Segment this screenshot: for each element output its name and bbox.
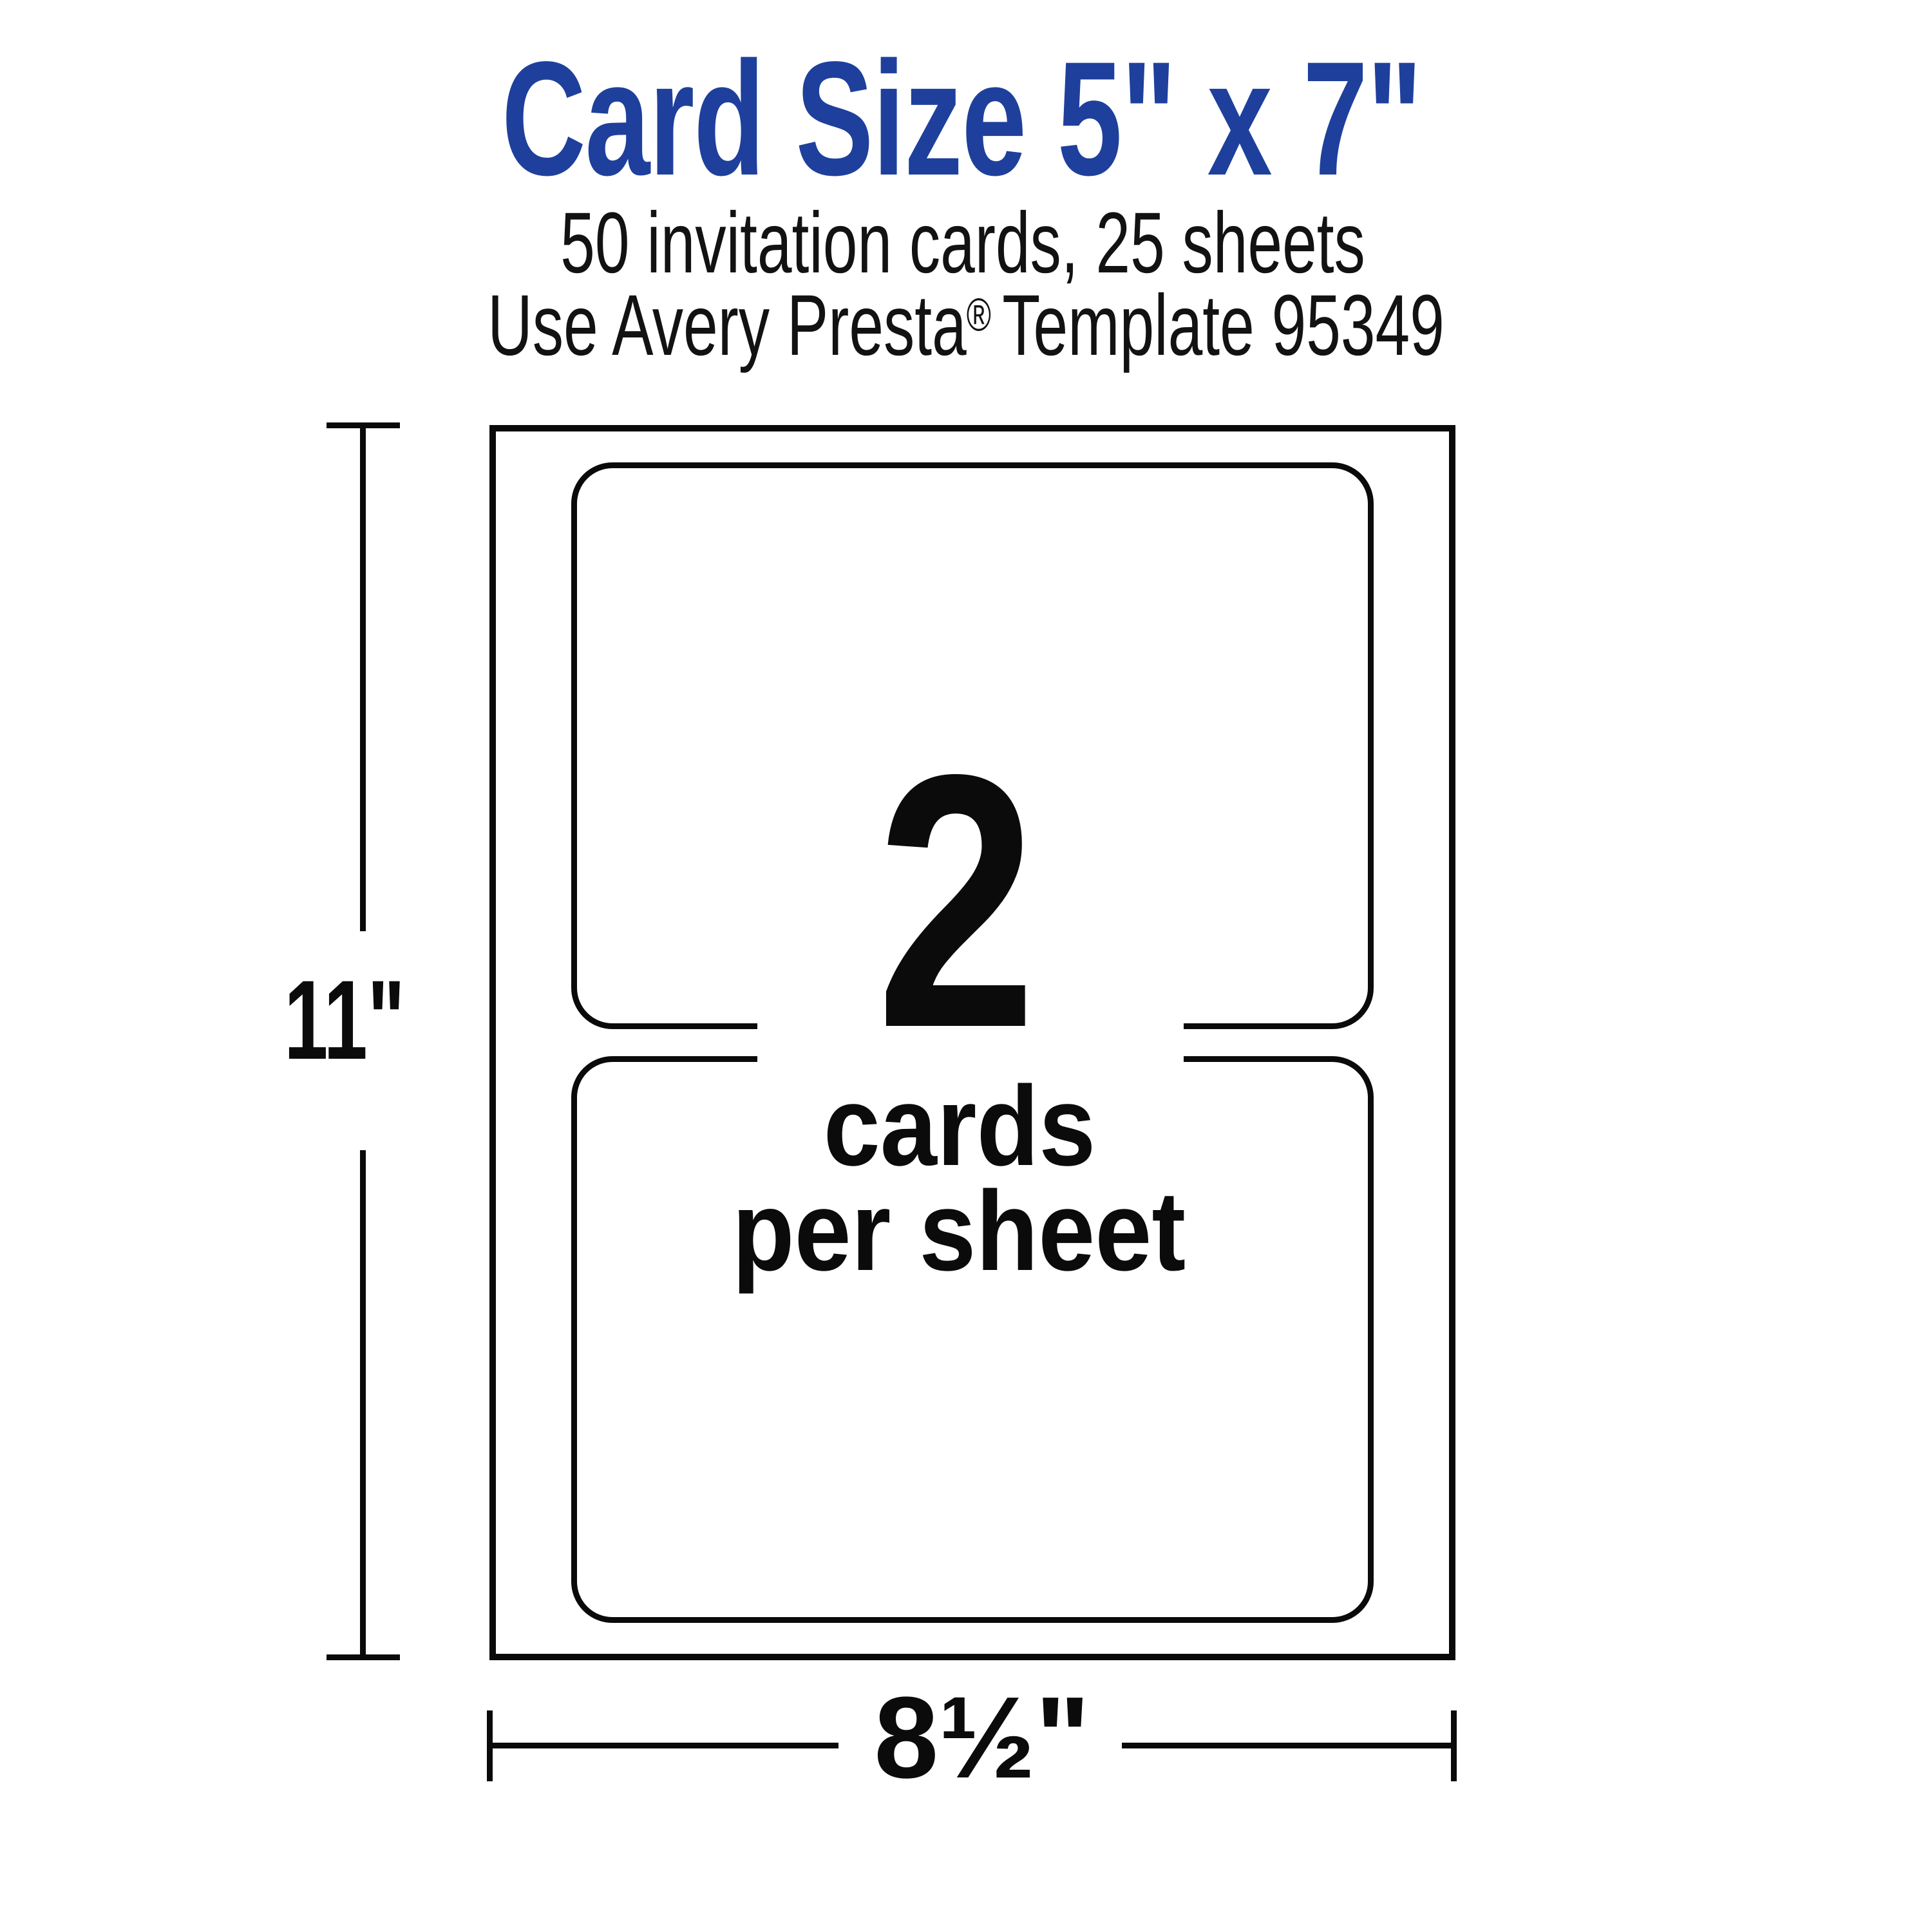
- height-dim-bottom-tick: [327, 1654, 400, 1660]
- page-root: Card Size 5" x 7" 50 invitation cards, 2…: [0, 0, 1932, 1932]
- height-dim-line-lower: [360, 1150, 366, 1660]
- width-dim-line-right: [1122, 1743, 1457, 1748]
- cards-caption-line-2: per sheet: [732, 1175, 1186, 1288]
- width-dim-line-left: [487, 1743, 838, 1748]
- subtitle-line-1: 50 invitation cards, 25 sheets: [560, 200, 1365, 287]
- registered-trademark-symbol: ®: [967, 290, 991, 341]
- height-dim-label: 11": [284, 964, 405, 1077]
- width-dim-label: 8½": [874, 1680, 1090, 1796]
- width-dim-right-tick: [1451, 1710, 1457, 1781]
- height-dim-line-upper: [360, 422, 366, 931]
- subtitle-line-2-prefix: Use Avery Presta: [488, 278, 967, 374]
- subtitle-line-2: Use Avery Presta®Template 95349: [488, 283, 1444, 369]
- subtitle-line-2-suffix: Template 95349: [1002, 278, 1444, 374]
- page-title: Card Size 5" x 7": [502, 38, 1421, 200]
- cards-count: 2: [876, 721, 1036, 1081]
- cards-caption-line-1: cards: [824, 1070, 1096, 1183]
